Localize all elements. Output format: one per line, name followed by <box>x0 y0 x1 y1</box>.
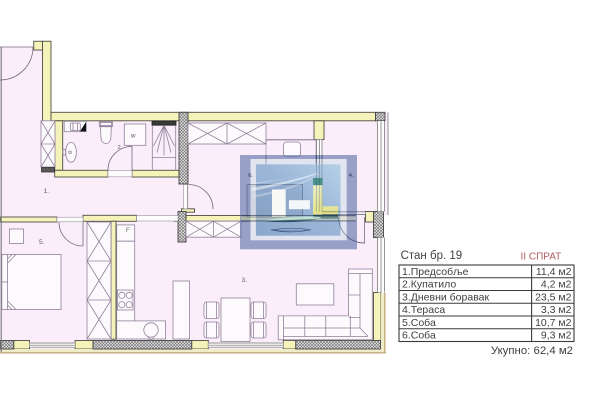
svg-text:2.Купатило: 2.Купатило <box>402 279 456 291</box>
svg-text:Стан бр. 19: Стан бр. 19 <box>401 250 463 262</box>
svg-text:3,3 м2: 3,3 м2 <box>541 304 572 316</box>
svg-text:9,3 м2: 9,3 м2 <box>541 330 572 342</box>
svg-text:II СПРАТ: II СПРАТ <box>521 251 562 262</box>
svg-text:1.: 1. <box>44 188 50 195</box>
svg-text:5.Соба: 5.Соба <box>402 317 436 329</box>
svg-text:5.: 5. <box>39 239 45 246</box>
svg-text:3.: 3. <box>242 277 248 284</box>
svg-text:6.: 6. <box>248 173 253 179</box>
svg-text:6.Соба: 6.Соба <box>402 330 436 342</box>
svg-text:2.: 2. <box>118 145 123 151</box>
svg-text:Укупно: 62,4 м2: Укупно: 62,4 м2 <box>491 345 573 357</box>
svg-text:1.Предсобље: 1.Предсобље <box>402 266 469 278</box>
svg-text:4,2 м2: 4,2 м2 <box>541 279 572 291</box>
svg-text:F: F <box>126 228 130 234</box>
svg-text:23,5 м2: 23,5 м2 <box>535 291 572 303</box>
svg-text:w: w <box>130 133 136 140</box>
svg-text:4.Тераса: 4.Тераса <box>402 304 445 316</box>
svg-text:4.: 4. <box>349 173 354 179</box>
svg-text:3.Дневни боравак: 3.Дневни боравак <box>402 291 489 303</box>
svg-text:11,4 м2: 11,4 м2 <box>536 266 572 278</box>
svg-text:10,7 м2: 10,7 м2 <box>535 317 572 329</box>
